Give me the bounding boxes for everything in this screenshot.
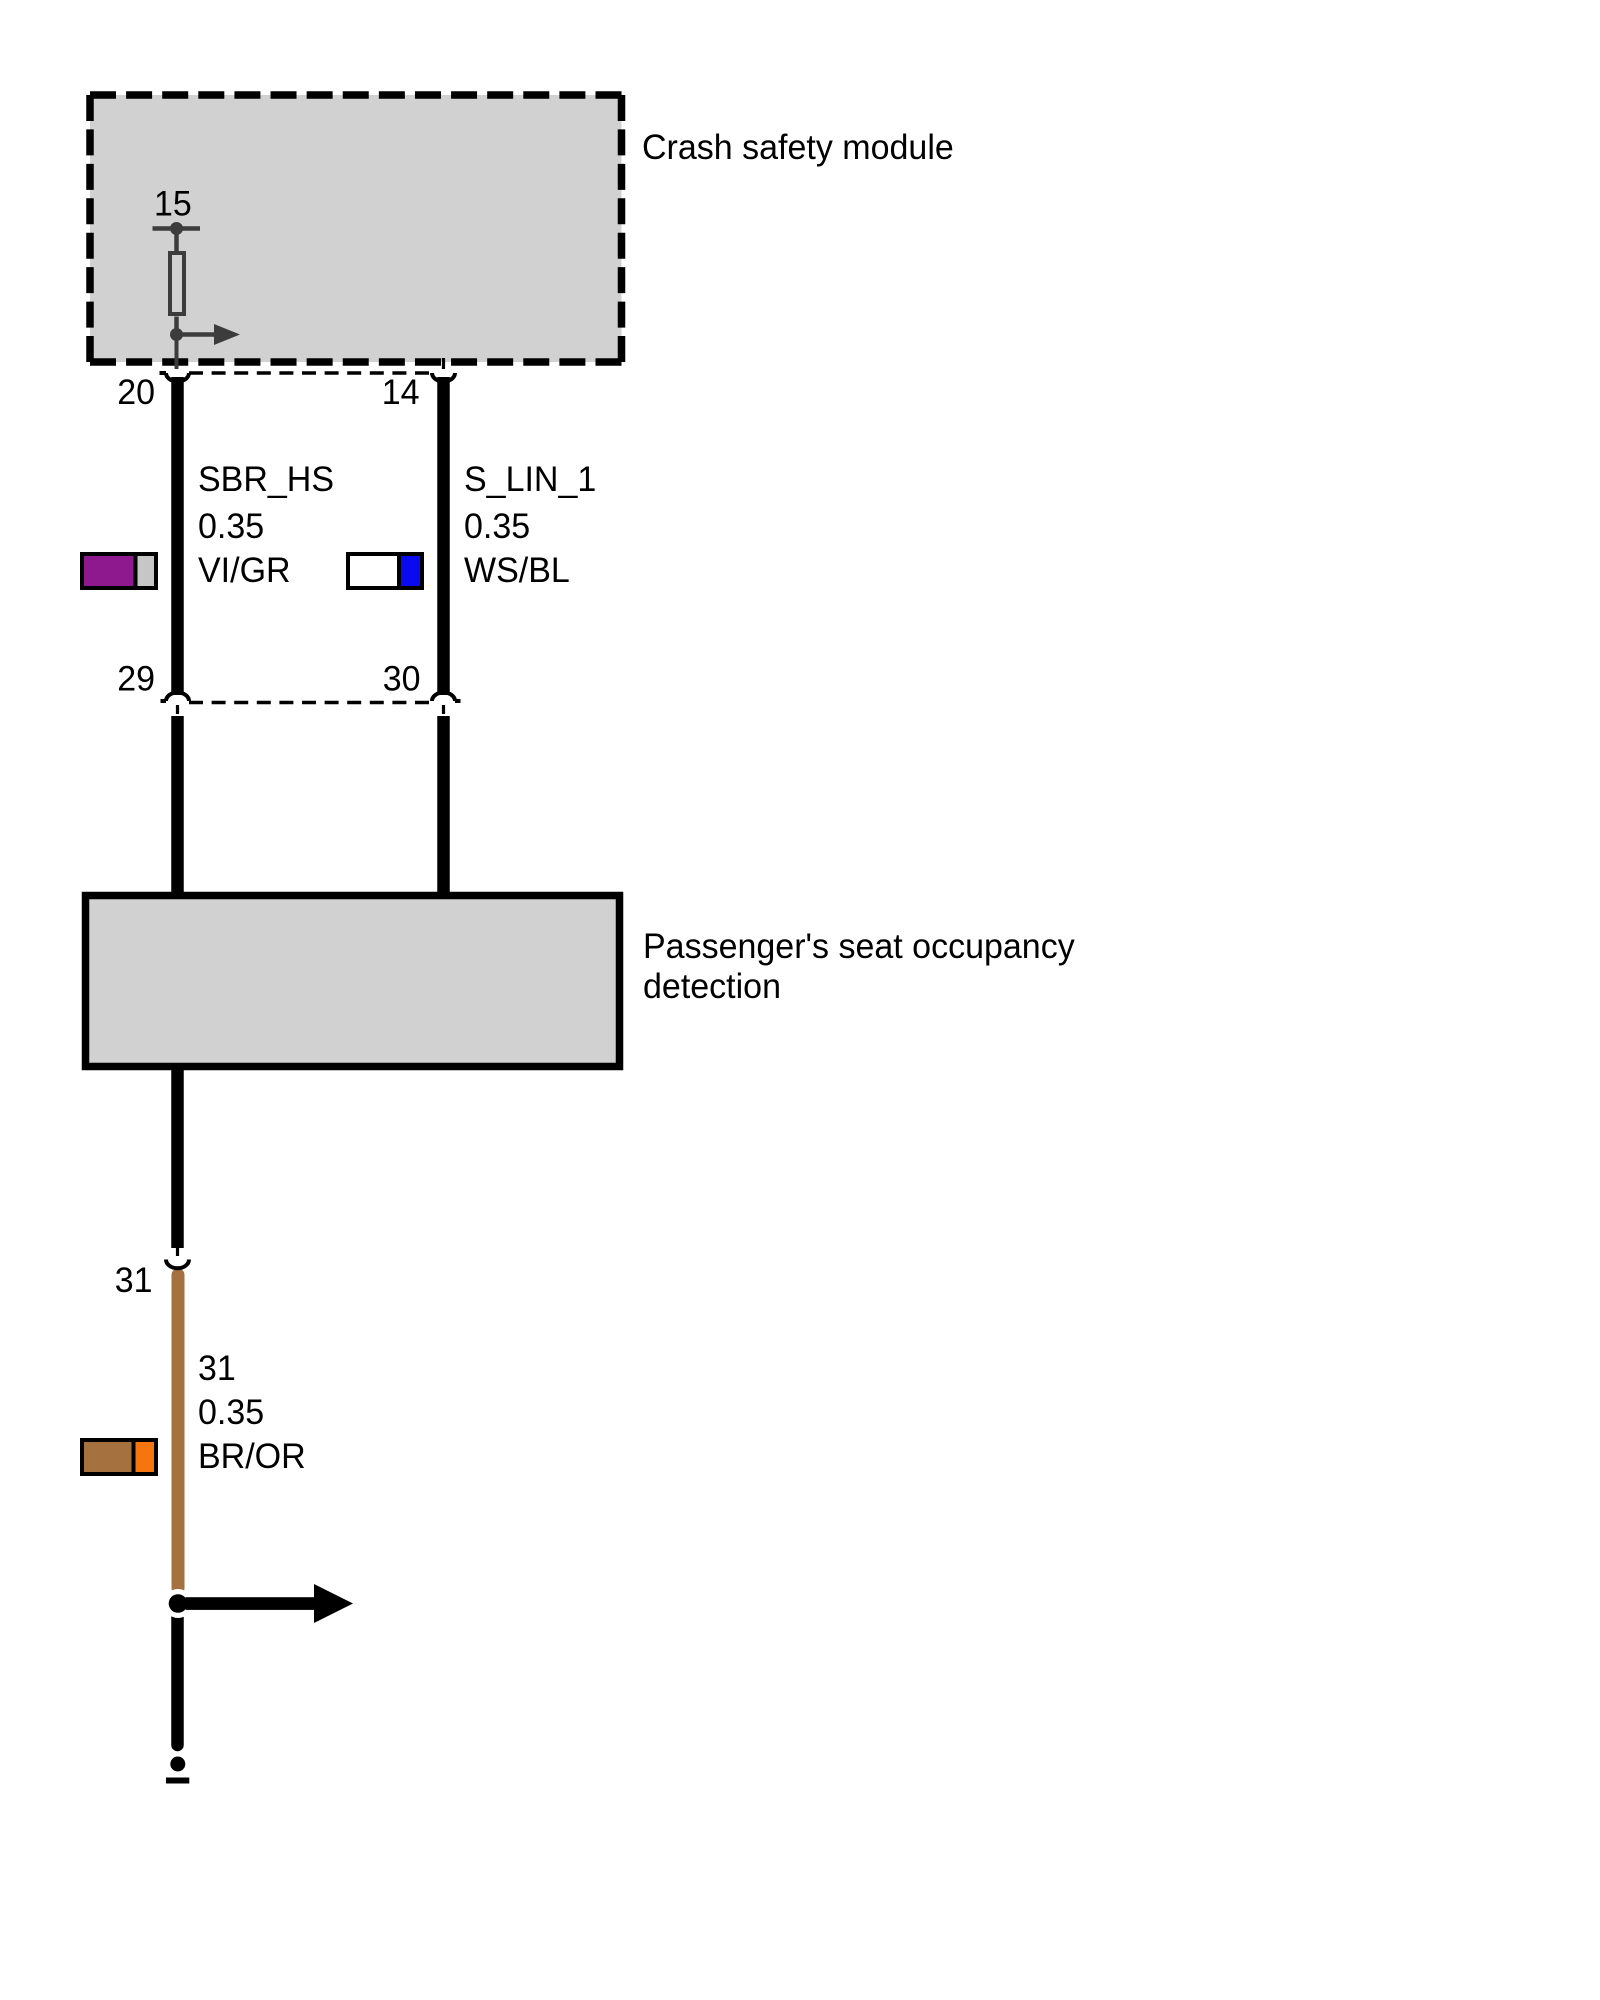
svg-text:31: 31 bbox=[115, 1260, 153, 1300]
svg-text:SBR_HS: SBR_HS bbox=[198, 459, 334, 499]
svg-text:29: 29 bbox=[117, 659, 155, 699]
svg-text:VI/GR: VI/GR bbox=[198, 550, 291, 590]
svg-text:30: 30 bbox=[383, 659, 421, 699]
svg-text:15: 15 bbox=[154, 184, 192, 224]
svg-text:detection: detection bbox=[643, 966, 781, 1006]
svg-text:31: 31 bbox=[198, 1348, 236, 1388]
svg-text:0.35: 0.35 bbox=[464, 506, 530, 546]
svg-text:0.35: 0.35 bbox=[198, 1392, 264, 1432]
svg-text:WS/BL: WS/BL bbox=[464, 550, 570, 590]
svg-text:20: 20 bbox=[117, 372, 155, 412]
svg-text:Passenger's seat occupancy: Passenger's seat occupancy bbox=[643, 926, 1075, 966]
svg-text:0.35: 0.35 bbox=[198, 506, 264, 546]
svg-text:Crash safety module: Crash safety module bbox=[642, 127, 954, 167]
svg-text:S_LIN_1: S_LIN_1 bbox=[464, 459, 596, 499]
svg-text:14: 14 bbox=[382, 372, 420, 412]
svg-text:BR/OR: BR/OR bbox=[198, 1436, 306, 1476]
